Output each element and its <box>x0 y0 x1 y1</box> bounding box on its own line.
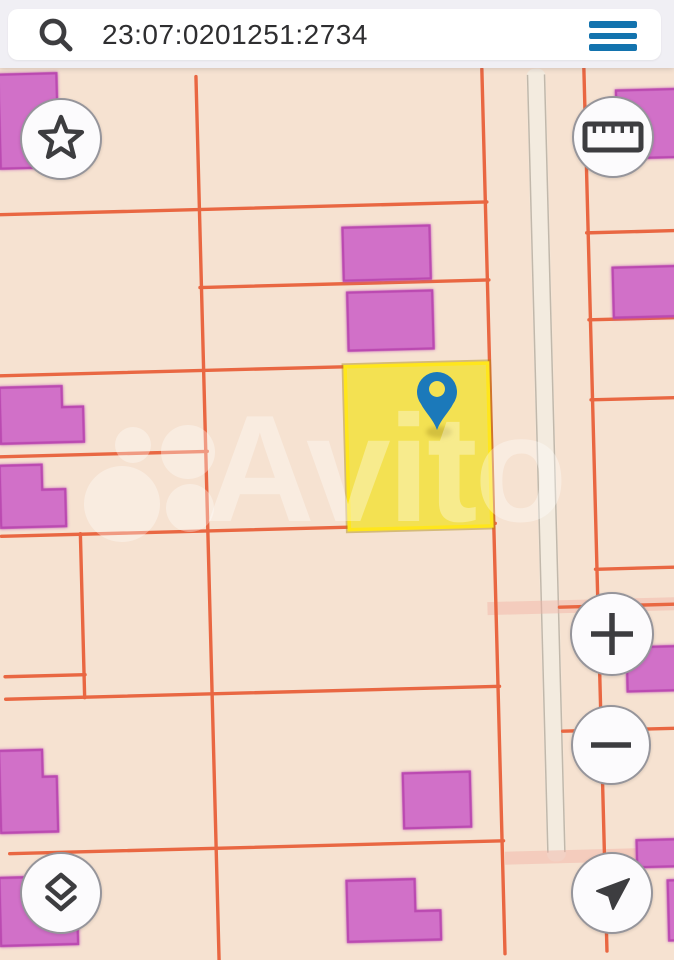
hamburger-menu-button[interactable] <box>589 21 637 51</box>
zoom-out-button[interactable] <box>571 705 651 785</box>
app-screen: Avito <box>0 0 674 960</box>
hamburger-icon <box>589 21 637 28</box>
cadastral-layer <box>0 68 674 960</box>
search-field[interactable] <box>8 9 661 60</box>
road <box>526 68 566 861</box>
pin-shadow <box>426 426 452 438</box>
favorite-button[interactable] <box>20 98 102 180</box>
parcel-boundaries <box>0 68 674 960</box>
navigation-arrow-icon <box>582 863 642 923</box>
locate-button[interactable] <box>571 852 653 934</box>
top-bar <box>0 0 674 68</box>
map-area[interactable] <box>0 68 674 960</box>
map-canvas[interactable] <box>0 68 674 960</box>
buildings-layer <box>0 68 674 958</box>
star-icon <box>31 109 91 169</box>
layers-button[interactable] <box>20 852 102 934</box>
ruler-icon <box>581 105 645 169</box>
hamburger-icon <box>589 33 637 40</box>
measure-button[interactable] <box>572 96 654 178</box>
search-input[interactable] <box>102 9 562 60</box>
layers-icon <box>30 862 92 924</box>
zoom-in-button[interactable] <box>570 592 654 676</box>
plus-icon <box>582 604 642 664</box>
minus-icon <box>581 715 641 775</box>
hamburger-icon <box>589 44 637 51</box>
search-icon <box>36 17 76 57</box>
